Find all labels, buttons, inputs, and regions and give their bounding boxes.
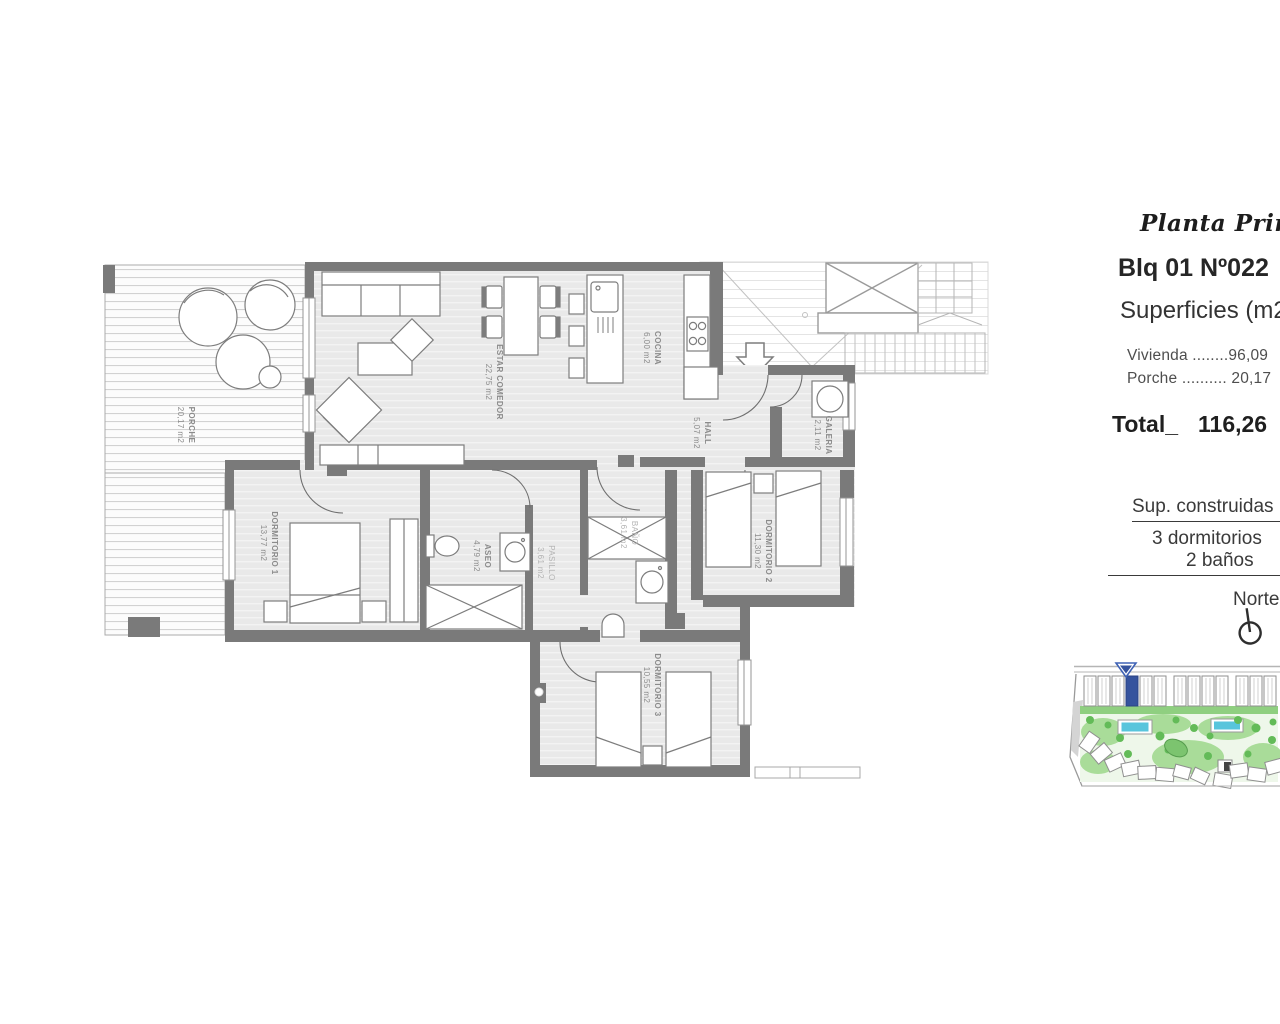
surface-rows: Vivienda ........96,09 Porche ..........…: [1127, 344, 1271, 390]
site-plan-map: [1068, 662, 1280, 794]
surfaces-heading: Superficies (m2): [1120, 299, 1280, 323]
total-label: Total_: [1112, 413, 1178, 436]
surface-row-porche: Porche .......... 20,17: [1127, 367, 1271, 390]
north-arrow-icon: [1228, 606, 1274, 652]
unit-number: Nº022: [1200, 256, 1269, 281]
neighbour-outline: [755, 767, 860, 778]
block-number: Blq 01: [1118, 256, 1193, 281]
total-value: 116,26: [1198, 413, 1267, 436]
site-buildings-row: [1084, 676, 1276, 706]
divider-line: [1132, 521, 1280, 522]
location-marker-icon: [1116, 663, 1136, 677]
bathrooms-count: 2 baños: [1186, 551, 1254, 570]
floor-plan-drawing: [100, 255, 990, 790]
site-highlighted-unit: [1126, 676, 1138, 706]
floor-plan-sheet: { "panel": { "title": "Planta Primera", …: [0, 0, 1280, 1024]
sheet-title: Planta Primera: [1140, 212, 1280, 235]
divider-line: [1108, 575, 1280, 576]
bedrooms-count: 3 dormitorios: [1152, 529, 1262, 548]
surface-row-vivienda: Vivienda ........96,09: [1127, 344, 1271, 367]
built-surfaces-heading: Sup. construidas: [1132, 497, 1274, 516]
